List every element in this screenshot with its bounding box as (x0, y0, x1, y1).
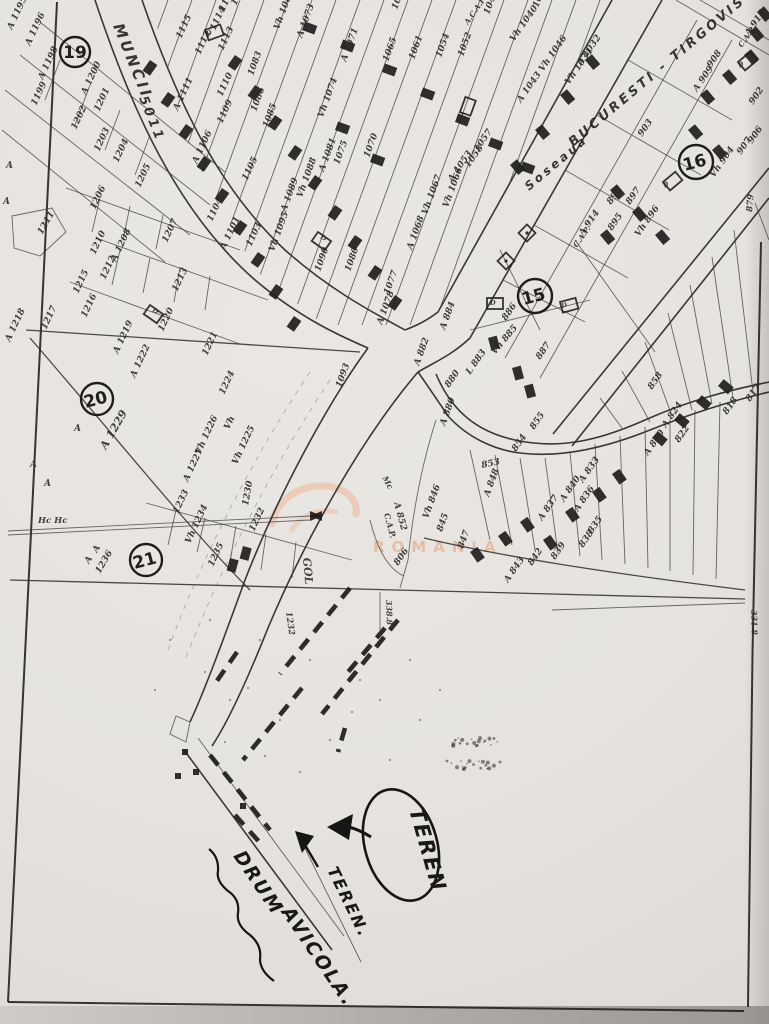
parcel-label: A 848 (482, 467, 502, 499)
dirt-speckle (467, 759, 471, 763)
speckle (279, 719, 281, 721)
parcel-label: 1232 (283, 611, 296, 636)
zone-number: 20 (82, 387, 110, 412)
dirt-speckle (492, 764, 496, 768)
building (420, 88, 435, 101)
parcel-label: A (82, 554, 95, 566)
parcel-label: 1224 (218, 369, 238, 396)
strip-line (482, 0, 600, 325)
building (227, 558, 239, 573)
dirt-speckle (479, 767, 482, 770)
speckle (224, 741, 226, 743)
dirt-speckle (487, 737, 491, 741)
dirt-speckle (472, 763, 475, 766)
zone-number: 15 (520, 284, 548, 309)
building (228, 55, 243, 71)
dirt-speckle (451, 744, 455, 748)
parcel-label: 1052 (456, 31, 474, 58)
parcel-label: A 1196 (23, 11, 48, 49)
small-arrow-head-icon (295, 831, 314, 853)
parcel-label: Vh 1074 (316, 76, 340, 119)
dirt-speckle (454, 739, 457, 742)
parcel-label: A (2, 197, 10, 207)
zone-circle: 21 (130, 544, 162, 576)
building (655, 229, 670, 245)
hand-annotations: TERENTEREN.DRUMAVICOLA. (209, 780, 451, 1010)
parcel-label: 854 (510, 433, 529, 454)
big-arrow-tail (349, 827, 371, 837)
parcel-label: A (43, 479, 51, 489)
dirt-speckle (487, 766, 491, 770)
survey-monument (240, 803, 246, 809)
survey-monument (182, 749, 188, 755)
zone-number: 19 (63, 43, 87, 63)
parcel-label: 1202 (70, 104, 90, 131)
parcel-label: A 1111 (171, 76, 195, 113)
speckle (419, 719, 421, 721)
parcel-label: Vh 1067 (420, 173, 444, 216)
speckle (229, 699, 231, 701)
survey-monument (175, 773, 181, 779)
parcel-label: 1090 (313, 245, 331, 273)
parcel-label: 822 (673, 424, 692, 445)
dirt-speckle (484, 764, 487, 767)
parcel-label: 818 (721, 395, 740, 417)
parcel-label: A 1227 (181, 447, 206, 485)
speckle (264, 755, 266, 757)
dashed-boundary (243, 688, 302, 760)
parcel-label: A (90, 543, 103, 555)
parcel-label: 1212 (99, 254, 119, 281)
buildings (143, 6, 769, 573)
parcel-label: A 1073 (295, 3, 317, 40)
parcel-label: A 1068 (405, 214, 427, 252)
scan-speckles (154, 619, 501, 773)
well-symbol-dot (504, 259, 507, 262)
speckle (169, 639, 171, 641)
parcel-label: Vh (223, 415, 238, 431)
parcel-label: Vh 1225 (231, 424, 258, 466)
parcel-label: 1113 (217, 25, 237, 52)
parcel-label: A (5, 161, 13, 171)
building (288, 145, 303, 161)
zone-number: 21 (131, 548, 159, 573)
big-arrow-head-icon (327, 814, 353, 840)
parcel-label: 1070 (362, 131, 380, 159)
zone-number: 16 (681, 150, 709, 175)
building (535, 124, 550, 140)
building (240, 546, 252, 561)
small-arrow-tail (305, 845, 318, 867)
parcel-label: 1065 (381, 36, 399, 63)
speckle (389, 759, 391, 761)
speckle (204, 671, 206, 673)
building (718, 379, 734, 394)
right-paper-shadow (745, 0, 769, 1024)
road-hook (170, 716, 190, 742)
parcel-label: 1109 (216, 98, 236, 126)
dirt-speckle (446, 760, 449, 763)
dirt-speckle (493, 737, 496, 740)
parcel-label: 879 (745, 194, 757, 213)
parcel-label: A 1222 (128, 343, 152, 380)
building (560, 89, 575, 105)
speckle (247, 687, 249, 689)
speckle (439, 689, 441, 691)
building (368, 265, 383, 281)
parcel-label: A 1218 (3, 307, 28, 345)
parcel-label: 903 (636, 118, 655, 139)
parcel-label: GOL (300, 557, 315, 585)
speckle (299, 771, 301, 773)
parcel-label: Vh 1034 (563, 47, 595, 87)
parcel-label: 858 (646, 370, 665, 392)
drum-parallel-dash2 (168, 372, 310, 650)
dirt-speckle (462, 766, 464, 768)
strip-line (434, 0, 552, 325)
building (512, 366, 524, 381)
parcel-label: L 883 (464, 348, 489, 378)
building (335, 122, 350, 135)
parcel-label: 1207 (161, 217, 181, 245)
parcel-label: Vh 1082 (272, 0, 296, 31)
parcel-label: 1216 (80, 292, 100, 320)
parcel-label: 1211 (36, 210, 57, 237)
dirt-speckle (486, 761, 490, 765)
building (688, 124, 703, 140)
parcel-label: A 1198 (36, 45, 61, 83)
speckle (309, 659, 311, 661)
parcel-label: 880 (443, 368, 462, 390)
speckle (379, 699, 381, 701)
building-mark-label: D (489, 299, 496, 307)
parcel-label: 1201 (93, 86, 113, 113)
speckle (154, 689, 156, 691)
speckle (259, 639, 261, 641)
building (179, 124, 194, 140)
map-sheet: ROMANIA (0, 0, 769, 1024)
dirt-speckle (490, 744, 492, 746)
parcel-label: A 833 (577, 455, 602, 485)
parcel-label: 855 (528, 411, 547, 432)
parcel-label: 1230 (241, 479, 255, 506)
parcel-label: 331.8 (749, 610, 760, 636)
parcel-label: 842 (526, 547, 545, 568)
parcel-label: A 1195 (5, 0, 29, 32)
dirt-speckle (455, 765, 459, 769)
parcel-label: Mc (380, 473, 396, 491)
parcel-label: 897 (624, 185, 643, 207)
dirt-speckle (481, 760, 485, 764)
speckle (409, 659, 411, 661)
speckle (351, 711, 353, 713)
well-symbol-dot (525, 231, 528, 234)
parcel-label: 1203 (93, 126, 113, 153)
building (269, 284, 284, 300)
parcel-label: 835 (586, 515, 605, 536)
dirt-speckle (457, 737, 459, 739)
parcel-label: 1080 (343, 245, 361, 273)
speckle (209, 619, 211, 621)
parcel-label: 1103 (245, 221, 265, 248)
building (520, 517, 535, 533)
parcel-label: 1047 (482, 0, 500, 16)
building-mark-label: D (559, 301, 568, 311)
speckle (329, 739, 331, 741)
zone-circle: 15 (518, 279, 552, 313)
parcel-label: Hc Hc (37, 516, 68, 526)
parcel-label: 1210 (89, 229, 109, 257)
dirt-speckle (460, 738, 464, 742)
roads (95, 0, 769, 950)
farm-road-edge1 (184, 750, 332, 950)
parcel-label: A (29, 460, 37, 470)
building (722, 69, 737, 85)
parcel-label: 1115 (175, 13, 195, 40)
parcel-label: 845 (435, 512, 451, 533)
parcel-label: 338.8 (384, 600, 395, 626)
parcel-label: 1054 (434, 32, 452, 59)
dirt-speckle (471, 738, 473, 740)
parcel-label: A 843 (502, 555, 527, 585)
teren-bubble-label: TEREN (404, 805, 451, 895)
building (524, 384, 536, 399)
parcel-label: 1199 (30, 80, 50, 108)
dirt-speckle (477, 744, 479, 746)
dashed-boundary (348, 628, 385, 672)
dirt-speckle (466, 742, 469, 745)
parcel-label: Vh 1046 (537, 33, 570, 74)
parcel-label: 895 (606, 212, 625, 233)
parcel-label: 1104 (206, 196, 226, 223)
dirt-speckle (477, 739, 481, 743)
parcel-label: 1221 (201, 330, 221, 357)
parcel-label: 1235 (207, 541, 227, 568)
parcel-label: 1204 (112, 137, 132, 164)
parcel-label: Vh 1095 (267, 210, 291, 253)
dirt-speckle (497, 741, 499, 743)
parcel-label: Vh 1234 (184, 503, 211, 545)
dirt-speckle (483, 741, 485, 743)
survey-monument (193, 769, 199, 775)
parcel-label: 1061 (407, 34, 425, 61)
dirt-speckle (460, 760, 462, 762)
dirt-speckle (478, 761, 480, 763)
zone-circle: 19 (60, 37, 90, 67)
speckle (359, 679, 361, 681)
building (612, 469, 627, 485)
parcel-label: 1232 (248, 506, 268, 533)
dashed-boundary (322, 620, 398, 714)
street-label: BUCURESTI - TIRGOVISTE (566, 0, 767, 150)
bottom-paper-shadow (0, 1006, 769, 1024)
zone-circle: 16 (679, 145, 713, 179)
zone-circle: 20 (81, 383, 113, 415)
cadastral-map: ROMANIA (0, 0, 769, 1024)
strip-line (170, 0, 288, 325)
parcel-label: 1213 (171, 266, 191, 293)
parcel-label: A 882 (412, 336, 432, 368)
dirt-speckle (499, 761, 502, 764)
dirt-speckle (462, 768, 465, 771)
parcel-label: A (73, 424, 81, 434)
dirt-speckle (451, 763, 453, 765)
building (328, 205, 343, 221)
parcel-label: 1105 (241, 155, 261, 182)
parcel-label: 1215 (72, 268, 92, 295)
parcel-label: 1205 (134, 162, 154, 189)
parcel-label: 1233 (172, 488, 192, 515)
dirt-speckle (459, 742, 462, 745)
building (510, 159, 525, 175)
parcel-label: 1117 (230, 0, 250, 7)
dirt-speckle (472, 741, 476, 745)
dashed-boundary (338, 728, 345, 752)
dirt-speckle (466, 763, 468, 765)
building (287, 316, 302, 332)
parcel-label: 1110 (216, 71, 236, 99)
